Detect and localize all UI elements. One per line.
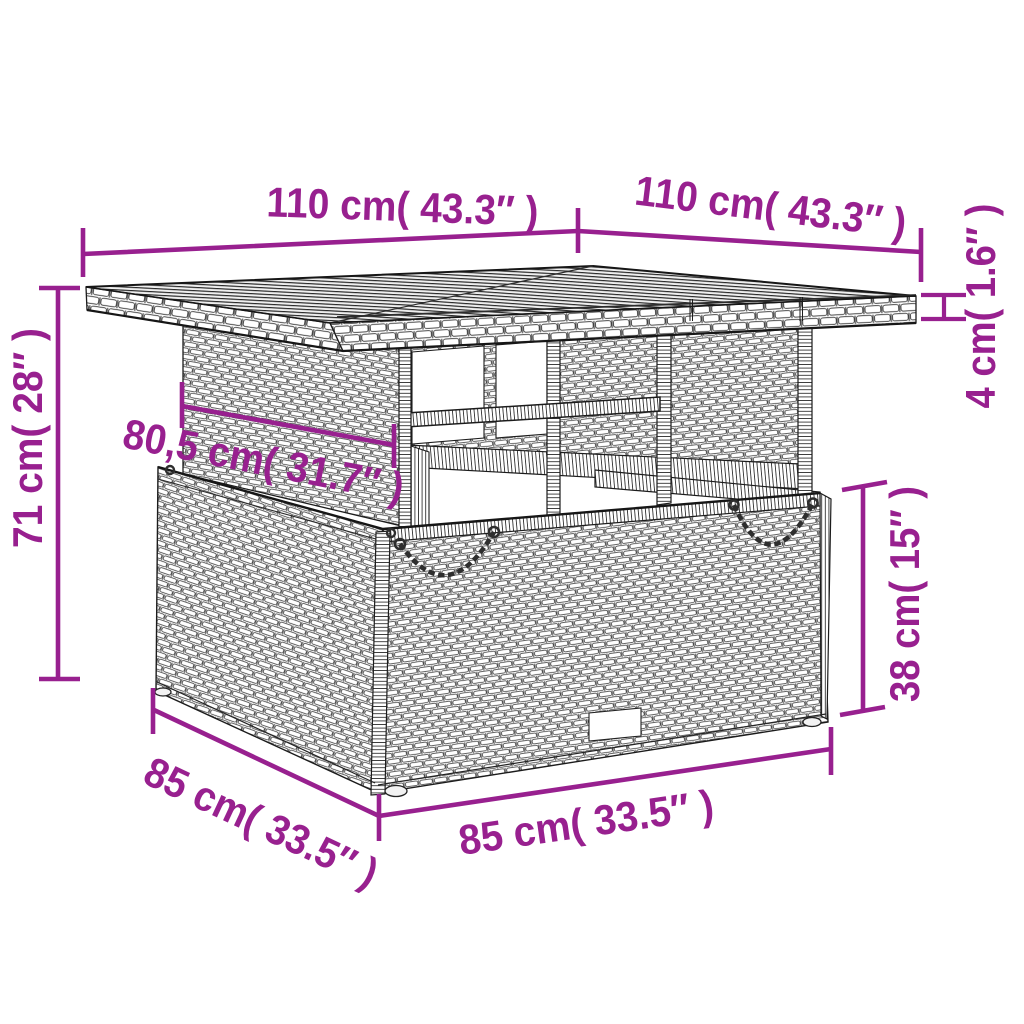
svg-text:4 cm( 1.6″ ): 4 cm( 1.6″ ): [957, 204, 1004, 409]
svg-text:38 cm( 15″ ): 38 cm( 15″ ): [881, 486, 928, 702]
svg-text:71 cm( 28″ ): 71 cm( 28″ ): [4, 328, 51, 548]
svg-text:110 cm( 43.3″ ): 110 cm( 43.3″ ): [266, 178, 539, 234]
